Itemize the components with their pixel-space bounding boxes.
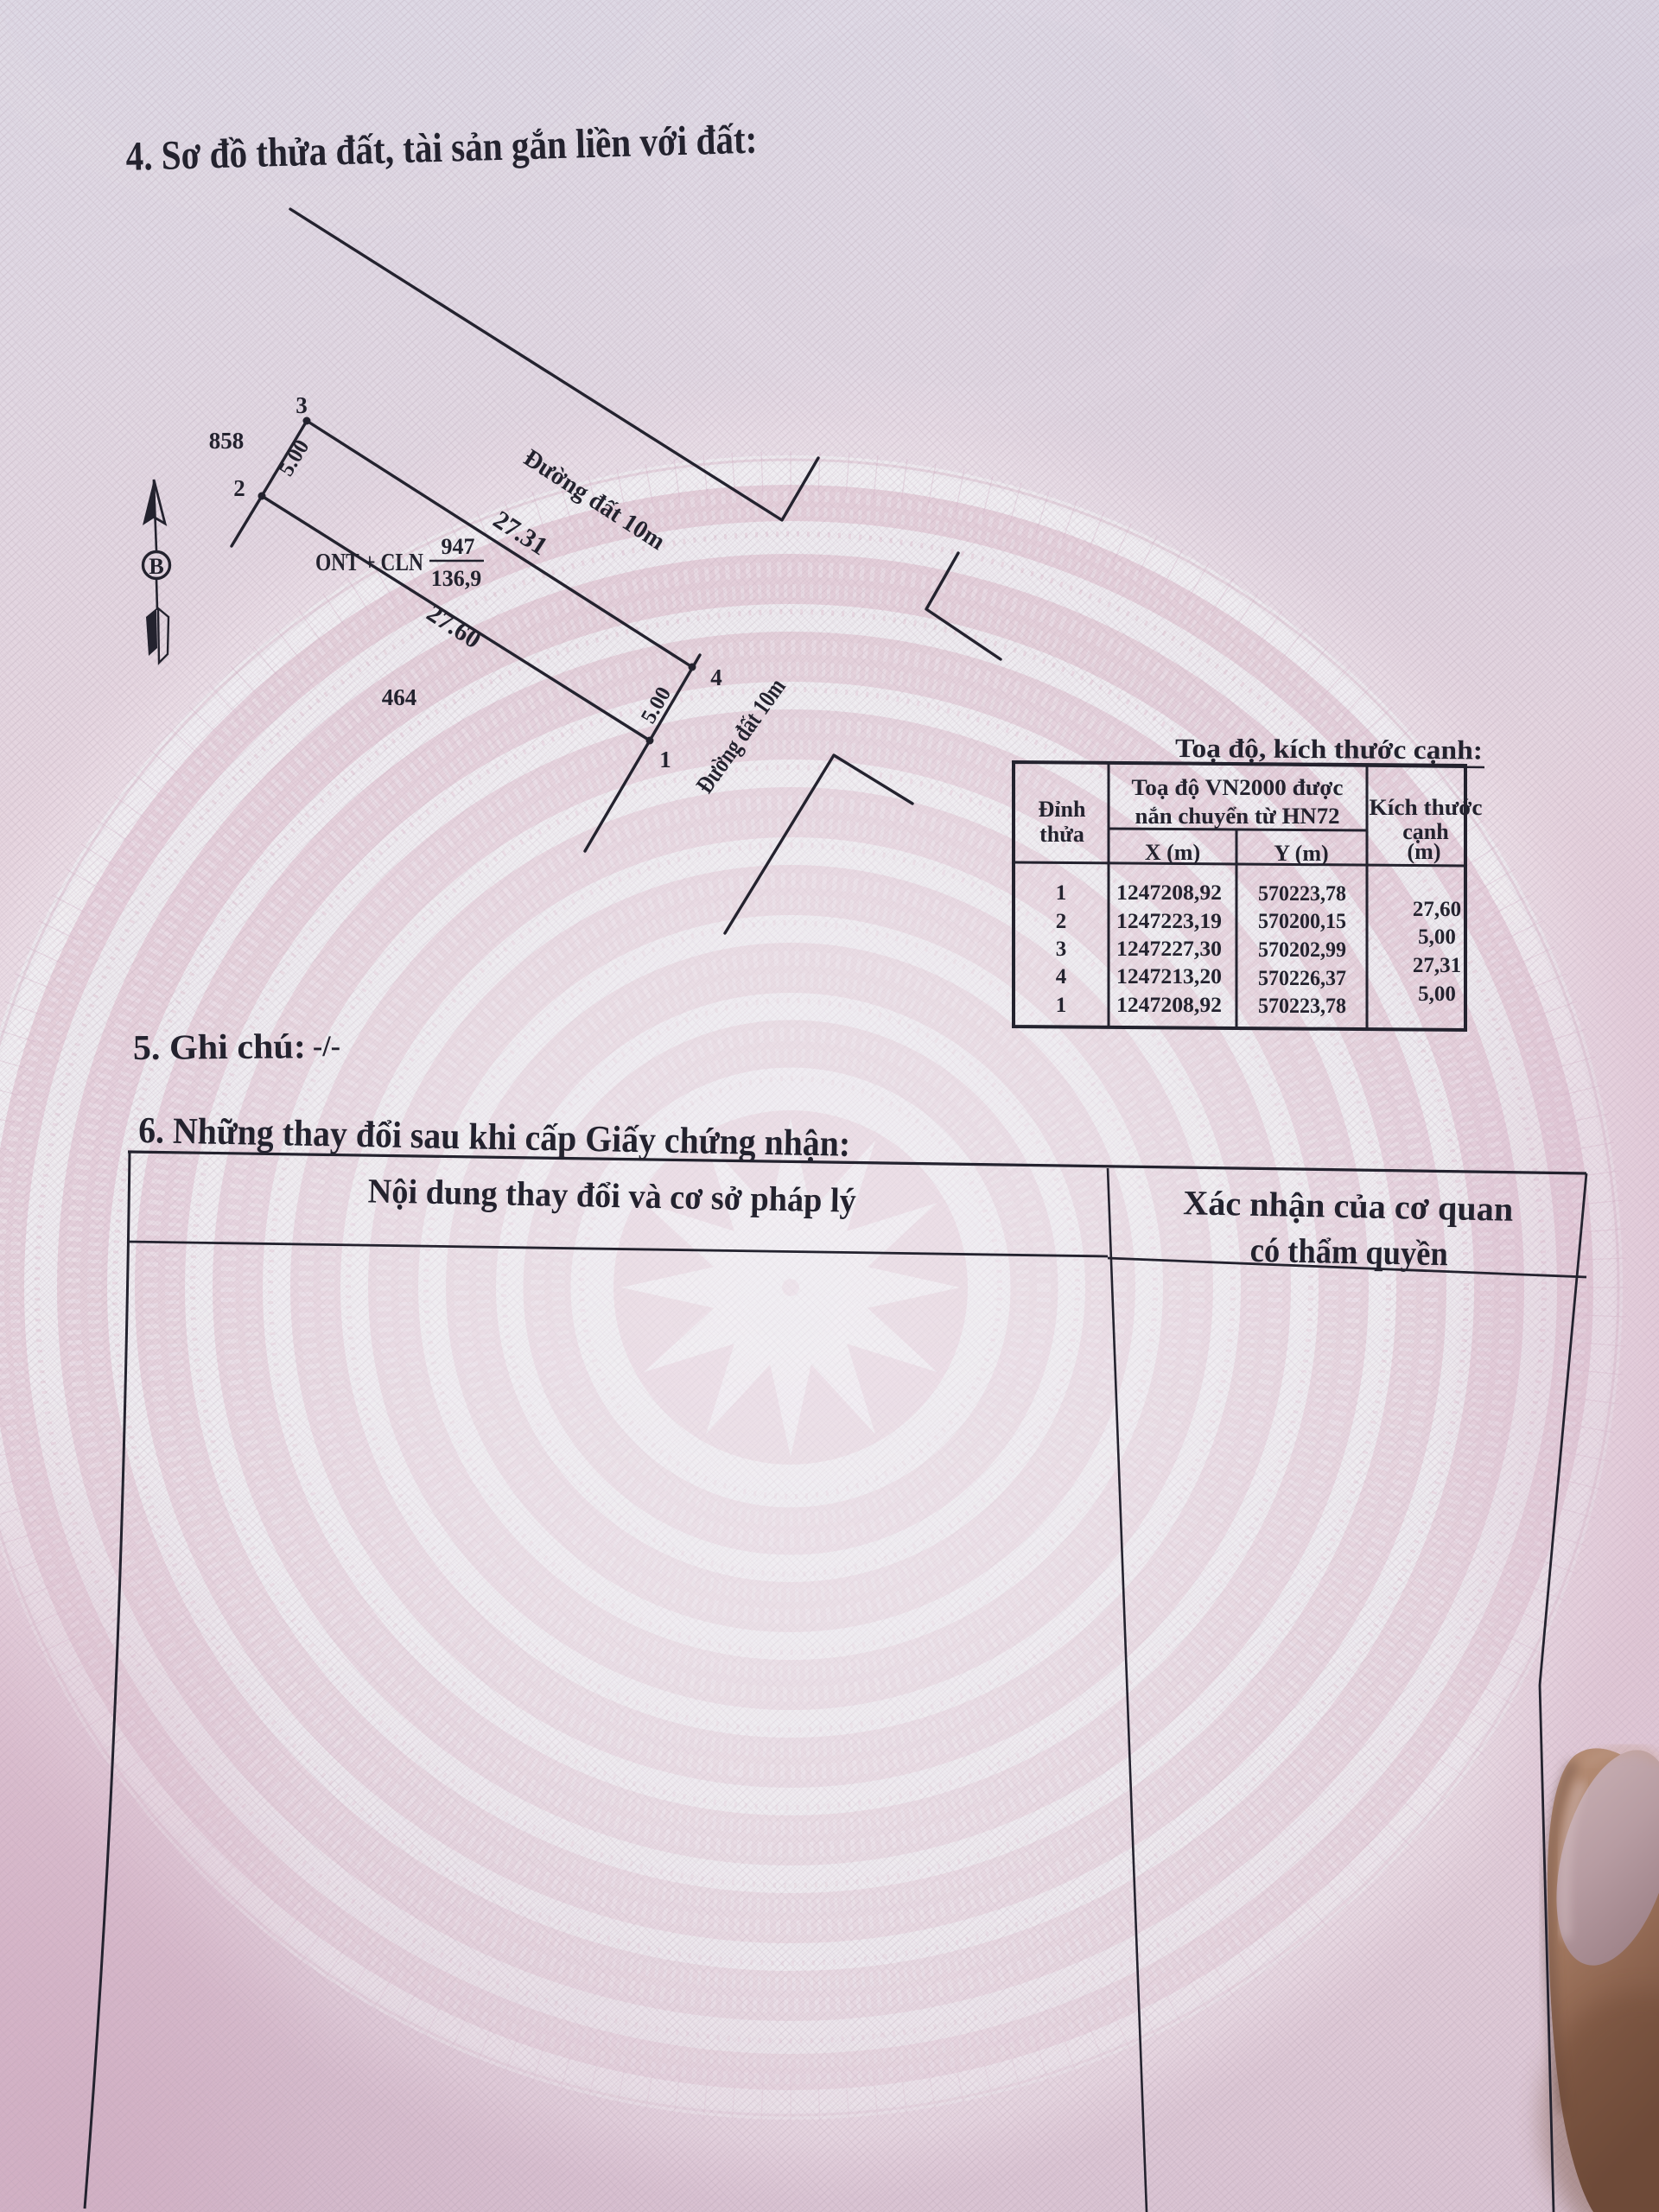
svg-text:1247208,92: 1247208,92 xyxy=(1116,881,1222,905)
svg-text:-/-: -/- xyxy=(313,1031,340,1063)
svg-text:570200,15: 570200,15 xyxy=(1258,910,1346,933)
svg-text:947: 947 xyxy=(442,534,475,559)
svg-text:thửa: thửa xyxy=(1039,822,1084,847)
svg-text:5,00: 5,00 xyxy=(1418,982,1456,1006)
svg-text:570223,78: 570223,78 xyxy=(1258,882,1346,906)
svg-text:1: 1 xyxy=(1056,881,1067,905)
svg-text:1: 1 xyxy=(659,747,671,772)
svg-text:2: 2 xyxy=(233,475,245,501)
svg-text:1247223,19: 1247223,19 xyxy=(1116,910,1222,933)
svg-text:5. Ghi chú:: 5. Ghi chú: xyxy=(133,1026,306,1067)
svg-text:ONT + CLN: ONT + CLN xyxy=(315,550,423,576)
svg-text:Toạ độ VN2000 được: Toạ độ VN2000 được xyxy=(1132,775,1344,800)
svg-text:Đỉnh: Đỉnh xyxy=(1039,797,1086,822)
svg-text:Xác nhận của cơ quan: Xác nhận của cơ quan xyxy=(1183,1183,1514,1229)
svg-text:1247213,20: 1247213,20 xyxy=(1116,965,1222,988)
svg-text:4: 4 xyxy=(1056,965,1067,988)
svg-text:nắn chuyển từ HN72: nắn chuyển từ HN72 xyxy=(1135,804,1340,829)
svg-text:1: 1 xyxy=(1056,994,1067,1017)
svg-text:có thẩm quyền: có thẩm quyền xyxy=(1249,1230,1448,1274)
svg-text:1247208,92: 1247208,92 xyxy=(1116,994,1222,1017)
svg-text:570202,99: 570202,99 xyxy=(1258,938,1346,962)
svg-text:858: 858 xyxy=(209,428,245,454)
svg-text:27,31: 27,31 xyxy=(1413,954,1461,977)
svg-text:Kích thước: Kích thước xyxy=(1370,795,1483,820)
svg-text:2: 2 xyxy=(1056,910,1067,933)
svg-text:4: 4 xyxy=(710,664,722,690)
svg-text:27,60: 27,60 xyxy=(1413,898,1461,921)
svg-text:B: B xyxy=(149,554,163,579)
svg-text:Toạ độ, kích thước cạnh:: Toạ độ, kích thước cạnh: xyxy=(1175,733,1483,765)
svg-text:5,00: 5,00 xyxy=(1418,925,1456,949)
svg-text:Y (m): Y (m) xyxy=(1274,841,1328,866)
svg-text:3: 3 xyxy=(296,392,308,418)
svg-text:570226,37: 570226,37 xyxy=(1258,967,1346,990)
svg-text:(m): (m) xyxy=(1408,839,1441,864)
svg-text:3: 3 xyxy=(1056,938,1067,961)
svg-text:570223,78: 570223,78 xyxy=(1258,995,1346,1018)
svg-text:1247227,30: 1247227,30 xyxy=(1116,938,1222,961)
svg-text:X (m): X (m) xyxy=(1145,840,1200,865)
svg-text:136,9: 136,9 xyxy=(431,566,482,591)
svg-text:464: 464 xyxy=(382,684,417,710)
